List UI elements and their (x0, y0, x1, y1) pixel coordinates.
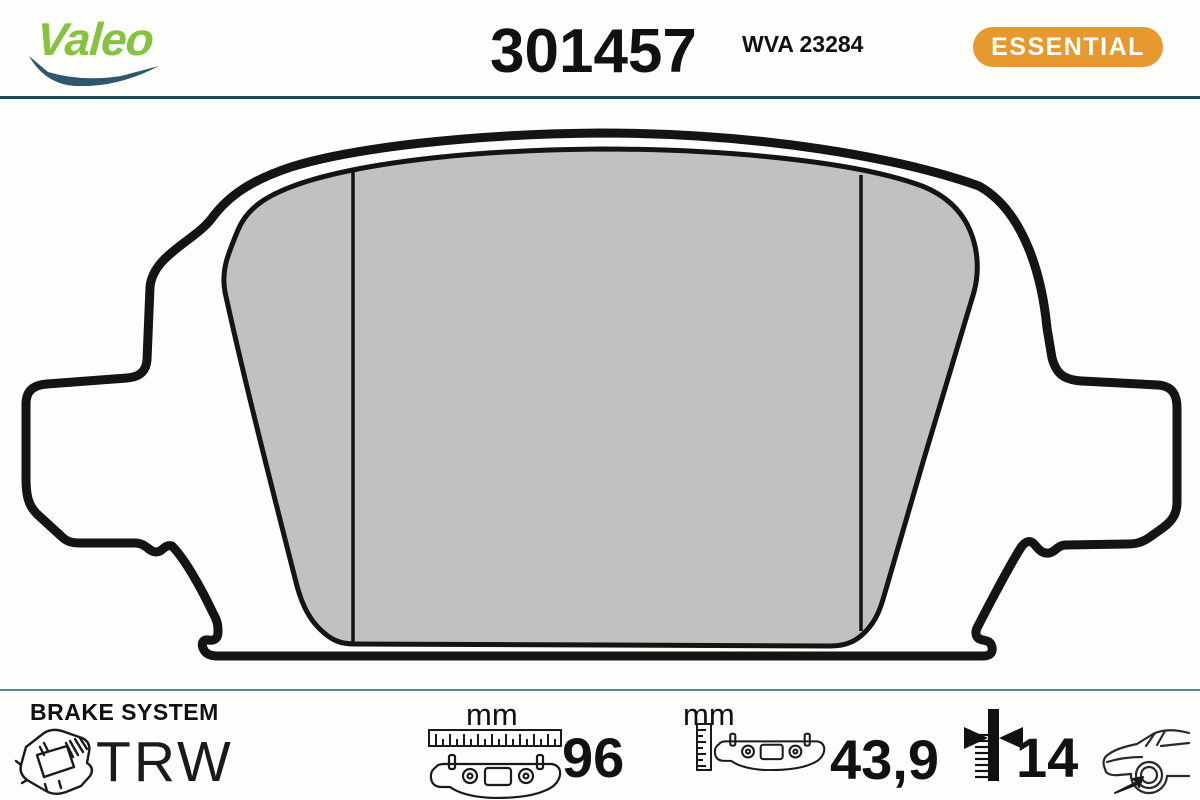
wva-number: WVA 23284 (742, 31, 863, 58)
height-value: 43,9 (830, 727, 939, 792)
brake-pad-drawing (0, 98, 1200, 686)
width-unit-label: mm (466, 697, 518, 733)
ruler-vertical-icon (696, 723, 712, 771)
ruler-horizontal-icon (428, 729, 562, 747)
valeo-logo: Valeo (25, 10, 175, 90)
valeo-swoosh-icon (25, 56, 165, 86)
car-rear-axle-icon (1095, 713, 1191, 795)
trw-wordmark: TRW (96, 729, 234, 795)
thickness-value: 14 (1016, 725, 1078, 790)
essential-badge: ESSENTIAL (973, 27, 1163, 67)
thickness-gauge-icon (952, 705, 1026, 785)
part-number: 301457 (490, 16, 697, 87)
brake-caliper-icon (10, 721, 98, 797)
friction-material (224, 149, 977, 646)
width-value: 96 (562, 725, 624, 790)
header: Valeo 301457 WVA 23284 ESSENTIAL (0, 0, 1200, 99)
catalog-page: Valeo 301457 WVA 23284 ESSENTIAL BRAKE S… (0, 0, 1200, 800)
footer: BRAKE SYSTEM TRW mm (0, 689, 1200, 800)
pad-front-view-small-icon (712, 727, 828, 771)
pad-front-view-icon (428, 747, 564, 799)
